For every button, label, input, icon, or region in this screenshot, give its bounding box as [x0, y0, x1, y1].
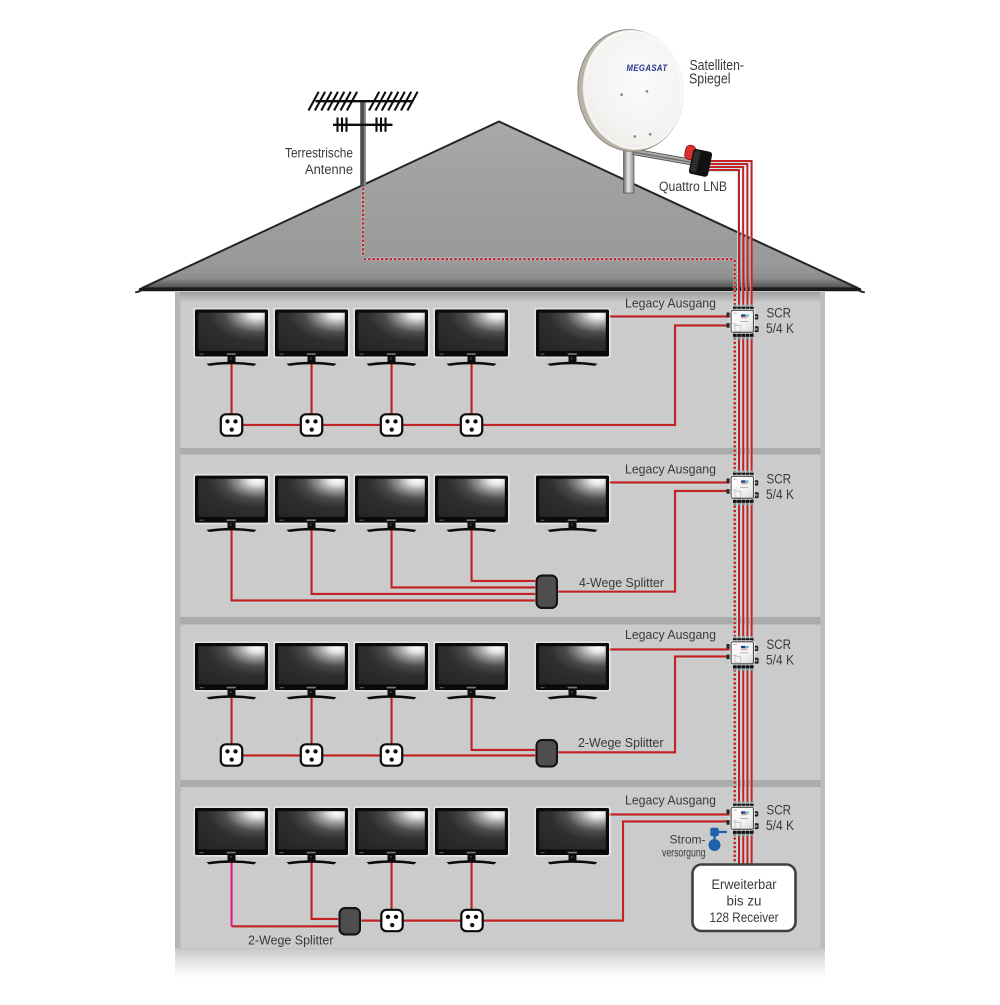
svg-text:Terrestrische: Terrestrische [285, 146, 353, 161]
svg-text:MEGASAT: MEGASAT [627, 63, 669, 73]
svg-text:Strom-: Strom- [670, 835, 706, 847]
svg-text:Quattro LNB: Quattro LNB [659, 179, 727, 194]
svg-text:SCR: SCR [767, 305, 792, 320]
svg-text:Antenne: Antenne [305, 162, 353, 177]
svg-text:2-Wege Splitter: 2-Wege Splitter [248, 933, 334, 948]
svg-text:128 Receiver: 128 Receiver [710, 910, 779, 925]
svg-text:SCR: SCR [767, 471, 792, 486]
svg-text:5/4 K: 5/4 K [766, 818, 794, 833]
svg-text:SCR: SCR [767, 637, 792, 652]
svg-text:2-Wege Splitter: 2-Wege Splitter [578, 735, 664, 750]
svg-text:versorgung: versorgung [662, 848, 706, 860]
svg-text:5/4 K: 5/4 K [766, 487, 794, 502]
svg-text:Legacy Ausgang: Legacy Ausgang [625, 628, 716, 642]
svg-text:5/4 K: 5/4 K [766, 321, 794, 336]
svg-text:Spiegel: Spiegel [689, 71, 731, 88]
svg-text:Legacy Ausgang: Legacy Ausgang [625, 463, 716, 477]
svg-text:Legacy Ausgang: Legacy Ausgang [625, 794, 716, 808]
svg-text:Erweiterbar: Erweiterbar [712, 877, 777, 892]
svg-text:Legacy Ausgang: Legacy Ausgang [625, 297, 716, 311]
svg-text:SCR: SCR [767, 802, 792, 817]
svg-text:4-Wege Splitter: 4-Wege Splitter [579, 575, 665, 590]
svg-text:bis zu: bis zu [727, 894, 762, 909]
svg-text:5/4 K: 5/4 K [766, 653, 794, 668]
